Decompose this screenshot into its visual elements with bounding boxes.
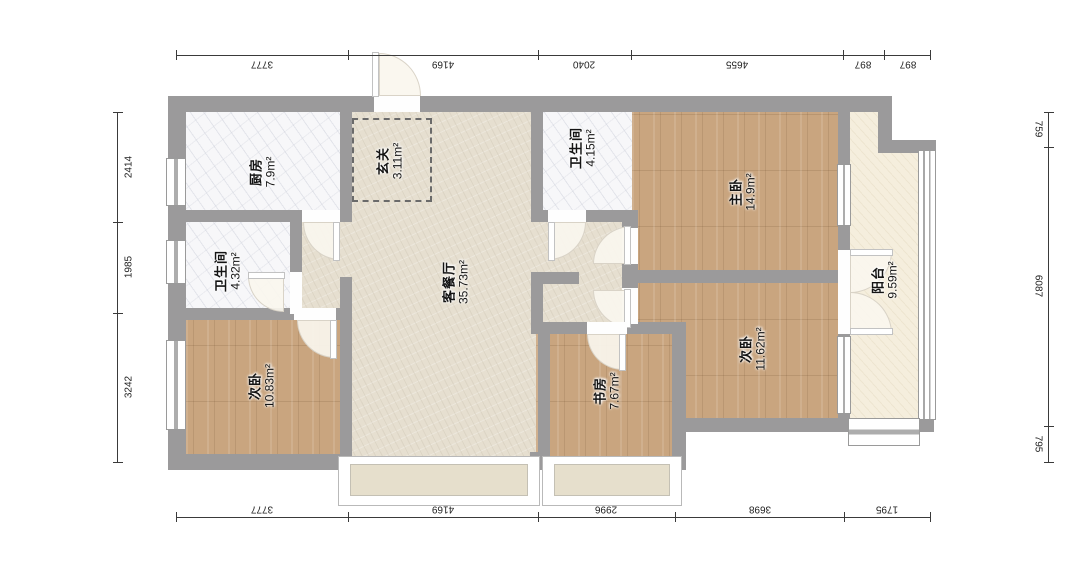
kitchen-name: 厨房 bbox=[250, 157, 265, 188]
dim-tick bbox=[675, 512, 676, 522]
dim-tick bbox=[1044, 112, 1054, 113]
wall-study-right bbox=[672, 322, 686, 470]
bedroom-right-window bbox=[837, 336, 851, 414]
balcony-area: 9.59m² bbox=[887, 261, 901, 298]
kitchen-label: 厨房 7.9m² bbox=[250, 157, 279, 188]
dim-tick bbox=[176, 512, 177, 522]
dim-bottom-3: 2996 bbox=[595, 504, 617, 515]
dim-tick bbox=[113, 112, 123, 113]
dim-tick bbox=[1044, 426, 1054, 427]
dim-top-4: 4655 bbox=[726, 59, 748, 70]
dim-line-top bbox=[176, 55, 930, 56]
kitchen-door-opening bbox=[302, 210, 340, 222]
bedroom-left-area: 10.83m² bbox=[264, 364, 278, 408]
living-dining-area: 35.73m² bbox=[458, 260, 472, 304]
study-area: 7.67m² bbox=[609, 372, 623, 409]
dim-line-left bbox=[117, 112, 118, 462]
living-dining-label: 客餐厅 35.73m² bbox=[443, 260, 472, 304]
dim-line-right bbox=[1048, 112, 1049, 462]
bath-second-area: 4.32m² bbox=[230, 250, 244, 292]
balcony-label: 阳台 9.59m² bbox=[872, 261, 901, 298]
balcony-door-master-leaf bbox=[850, 249, 893, 256]
balcony-end-window bbox=[848, 418, 920, 446]
dim-tick bbox=[113, 313, 123, 314]
bedroom-left-window bbox=[166, 340, 186, 430]
wall-balcony-corner bbox=[918, 418, 934, 432]
bath-main-label: 卫生间 4.15m² bbox=[570, 127, 599, 169]
study-door-opening bbox=[587, 322, 627, 334]
dim-left-2: 1985 bbox=[124, 256, 135, 278]
study-door-leaf bbox=[619, 334, 626, 371]
master-bedroom-label: 主卧 14.9m² bbox=[730, 173, 759, 210]
wall-master-bedroom-divider bbox=[632, 270, 850, 283]
living-dining-name: 客餐厅 bbox=[443, 260, 458, 304]
dim-tick bbox=[176, 50, 177, 60]
kitchen-area: 7.9m² bbox=[265, 157, 279, 188]
dim-tick bbox=[930, 512, 931, 522]
dim-top-1: 3777 bbox=[251, 59, 273, 70]
dim-top-6: 897 bbox=[900, 59, 917, 70]
kitchen-door-leaf bbox=[333, 222, 340, 261]
master-bedroom-window bbox=[837, 164, 851, 226]
study-bay-window-sill bbox=[554, 464, 670, 496]
entry-area: 3.11m² bbox=[392, 143, 406, 179]
dim-tick bbox=[843, 50, 844, 60]
entry-door-arc bbox=[379, 53, 421, 96]
balcony-side-window bbox=[918, 150, 936, 420]
dim-bottom-2: 4169 bbox=[432, 504, 454, 515]
balcony-door-bedroom-leaf bbox=[850, 328, 893, 335]
bedroom-right-label: 次卧 11.62m² bbox=[740, 327, 769, 370]
balcony-door-bedroom-opening bbox=[838, 294, 850, 334]
entry-door-opening bbox=[374, 96, 420, 112]
dim-tick bbox=[884, 50, 885, 60]
wall-top bbox=[168, 96, 890, 112]
dim-bottom-1: 3777 bbox=[251, 504, 273, 515]
dim-line-bottom bbox=[176, 517, 930, 518]
dim-tick bbox=[1044, 462, 1054, 463]
entry-name: 玄关 bbox=[377, 143, 392, 179]
floor-plan-page: { "title": "apartment-floor-plan", "pale… bbox=[0, 0, 1074, 576]
bedroom-left-door-leaf bbox=[330, 320, 337, 359]
bath-main-area: 4.15m² bbox=[585, 127, 599, 169]
bedroom-left-name: 次卧 bbox=[249, 364, 264, 408]
dim-tick bbox=[113, 222, 123, 223]
kitchen-window bbox=[166, 158, 186, 206]
wall-bedroom-left-right bbox=[340, 277, 352, 470]
bath-second-name: 卫生间 bbox=[215, 250, 230, 292]
floor-plan-canvas: 厨房 7.9m² 玄关 3.11m² 卫生间 4.15m² 主卧 14.9m² … bbox=[0, 0, 1074, 576]
dim-top-3: 2040 bbox=[573, 59, 595, 70]
dim-bottom-4: 3698 bbox=[749, 504, 771, 515]
wall-bottom-left bbox=[168, 454, 344, 470]
wall-bath-main-left bbox=[531, 108, 543, 222]
dim-tick bbox=[538, 50, 539, 60]
wall-study-left bbox=[538, 334, 550, 458]
dim-tick bbox=[113, 462, 123, 463]
master-bedroom-area: 14.9m² bbox=[745, 173, 759, 210]
dim-right-2: 6087 bbox=[1033, 275, 1044, 297]
bath-main-door-leaf bbox=[548, 222, 555, 261]
bath-main-door-opening bbox=[548, 210, 586, 222]
bath-main-name: 卫生间 bbox=[570, 127, 585, 169]
master-bedroom-name: 主卧 bbox=[730, 173, 745, 210]
dim-right-3: 795 bbox=[1033, 436, 1044, 453]
wall-bedroom-right-bottom bbox=[672, 418, 850, 432]
bath-second-window bbox=[166, 240, 186, 284]
living-bay-window-sill bbox=[350, 464, 528, 496]
balcony-name: 阳台 bbox=[872, 261, 887, 298]
dim-tick bbox=[1044, 147, 1054, 148]
dim-top-5: 897 bbox=[855, 59, 872, 70]
dim-tick bbox=[844, 512, 845, 522]
wall-kitchen-right bbox=[340, 96, 352, 222]
dim-left-1: 2414 bbox=[124, 156, 135, 178]
entry-label: 玄关 3.11m² bbox=[377, 143, 406, 179]
bedroom-left-label: 次卧 10.83m² bbox=[249, 364, 278, 408]
dim-tick bbox=[930, 50, 931, 60]
entry-door-leaf bbox=[372, 52, 379, 97]
dim-top-2: 4169 bbox=[432, 59, 454, 70]
study-label: 书房 7.67m² bbox=[594, 372, 623, 409]
bath-second-floor bbox=[186, 222, 302, 318]
bedroom-right-name: 次卧 bbox=[740, 327, 755, 370]
master-bedroom-door-leaf bbox=[624, 226, 631, 265]
dim-tick bbox=[631, 50, 632, 60]
bath-second-door-leaf bbox=[248, 272, 285, 279]
dim-tick bbox=[348, 50, 349, 60]
balcony-door-master-opening bbox=[838, 250, 850, 294]
bath-second-label: 卫生间 4.32m² bbox=[215, 250, 244, 292]
bedroom-right-area: 11.62m² bbox=[755, 327, 769, 370]
dim-tick bbox=[538, 512, 539, 522]
dim-right-1: 759 bbox=[1033, 121, 1044, 138]
bedroom-left-door-opening bbox=[294, 308, 336, 320]
study-name: 书房 bbox=[594, 372, 609, 409]
dim-left-3: 3242 bbox=[124, 376, 135, 398]
dim-bottom-5: 1795 bbox=[876, 504, 898, 515]
dim-tick bbox=[348, 512, 349, 522]
